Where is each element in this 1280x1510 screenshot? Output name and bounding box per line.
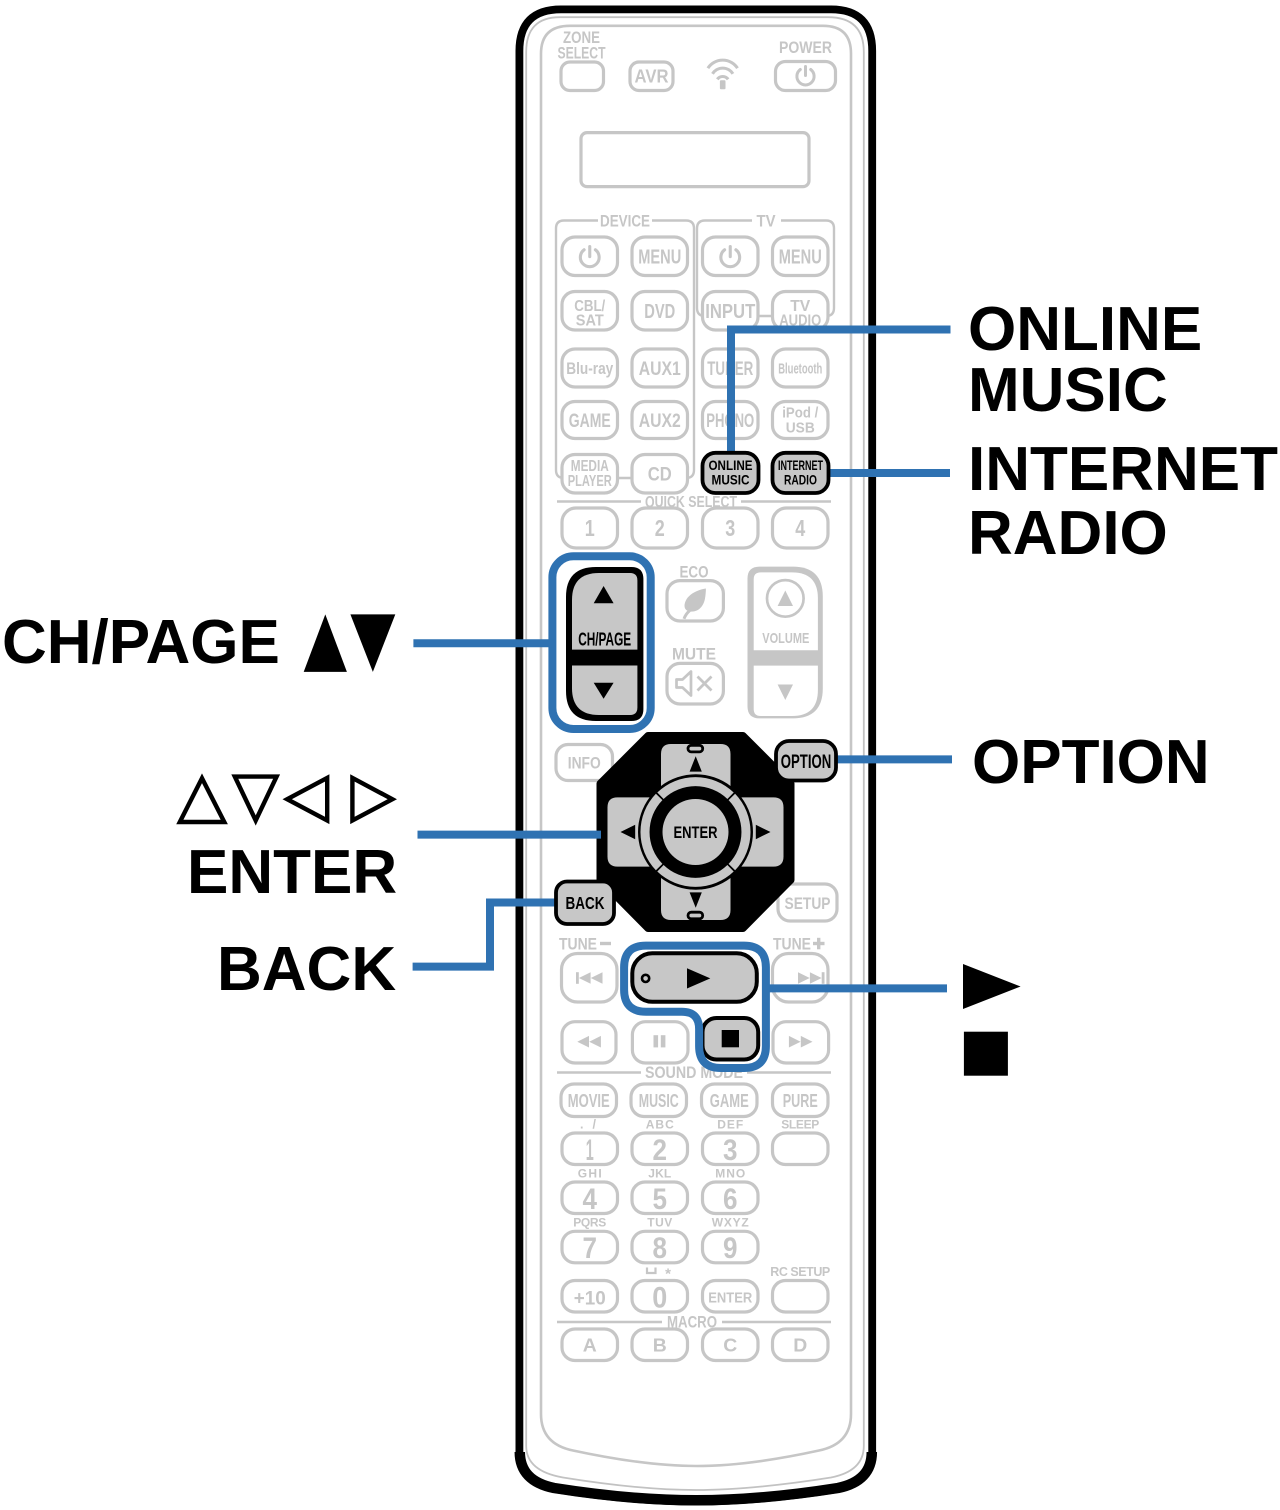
svg-text:TV: TV bbox=[757, 212, 777, 231]
svg-text:MUSIC: MUSIC bbox=[639, 1091, 679, 1111]
svg-text:2: 2 bbox=[655, 515, 665, 541]
svg-text:RC SETUP: RC SETUP bbox=[770, 1265, 830, 1279]
svg-text:ABC: ABC bbox=[646, 1118, 674, 1132]
svg-text:AUX2: AUX2 bbox=[639, 411, 681, 432]
svg-text:MOVIE: MOVIE bbox=[568, 1091, 610, 1111]
svg-text:BACK: BACK bbox=[217, 935, 396, 1004]
svg-text:4: 4 bbox=[795, 515, 805, 541]
svg-text:ECO: ECO bbox=[680, 564, 709, 582]
svg-text:3: 3 bbox=[725, 515, 735, 541]
svg-text:MENU: MENU bbox=[638, 246, 681, 268]
svg-text:WXYZ: WXYZ bbox=[712, 1216, 749, 1230]
svg-text:2: 2 bbox=[653, 1134, 668, 1167]
svg-text:PLAYER: PLAYER bbox=[568, 473, 612, 490]
svg-text:MUSIC: MUSIC bbox=[712, 471, 750, 487]
svg-text:INPUT: INPUT bbox=[705, 301, 755, 323]
svg-text:DEVICE: DEVICE bbox=[600, 212, 650, 231]
svg-text:. /: . / bbox=[580, 1118, 597, 1132]
svg-text:DVD: DVD bbox=[644, 301, 675, 323]
svg-text:MUTE: MUTE bbox=[672, 646, 716, 664]
svg-text:D: D bbox=[793, 1335, 807, 1355]
svg-text:POWER: POWER bbox=[779, 38, 832, 57]
svg-text:INTERNET: INTERNET bbox=[968, 435, 1278, 504]
svg-text:6: 6 bbox=[723, 1183, 738, 1216]
svg-text:GHI: GHI bbox=[578, 1167, 602, 1181]
svg-text:SLEEP: SLEEP bbox=[781, 1118, 819, 1132]
svg-text:PQRS: PQRS bbox=[573, 1216, 606, 1230]
svg-text:BACK: BACK bbox=[566, 893, 605, 913]
svg-text:MNO: MNO bbox=[715, 1167, 745, 1181]
svg-text:CH/PAGE: CH/PAGE bbox=[578, 630, 631, 650]
svg-text:7: 7 bbox=[583, 1232, 598, 1265]
svg-text:9: 9 bbox=[723, 1232, 738, 1265]
svg-text:5: 5 bbox=[653, 1183, 668, 1216]
svg-text:RADIO: RADIO bbox=[784, 471, 817, 487]
svg-text:B: B bbox=[653, 1335, 667, 1355]
svg-text:AUX1: AUX1 bbox=[639, 359, 681, 380]
svg-text:PURE: PURE bbox=[783, 1091, 818, 1111]
svg-text:ENTER: ENTER bbox=[708, 1290, 752, 1307]
svg-text:1: 1 bbox=[586, 1134, 594, 1167]
svg-text:C: C bbox=[723, 1335, 737, 1355]
svg-text:TUV: TUV bbox=[647, 1216, 672, 1230]
svg-text:USB: USB bbox=[786, 420, 815, 437]
svg-text:4: 4 bbox=[583, 1183, 598, 1216]
svg-text:A: A bbox=[583, 1335, 597, 1355]
svg-text:0: 0 bbox=[652, 1281, 667, 1314]
svg-text:Blu-ray: Blu-ray bbox=[566, 359, 613, 378]
svg-text:3: 3 bbox=[723, 1134, 738, 1167]
svg-text:SELECT: SELECT bbox=[558, 44, 606, 63]
svg-text:ENTER: ENTER bbox=[674, 823, 718, 842]
svg-text:DEF: DEF bbox=[717, 1118, 743, 1132]
svg-text:CH/PAGE: CH/PAGE bbox=[2, 608, 280, 677]
svg-text:OPTION: OPTION bbox=[781, 752, 832, 773]
svg-text:INFO: INFO bbox=[568, 755, 601, 773]
svg-text:OPTION: OPTION bbox=[972, 728, 1210, 797]
svg-text:GAME: GAME bbox=[569, 411, 611, 432]
svg-text:RADIO: RADIO bbox=[968, 499, 1168, 568]
svg-text:SETUP: SETUP bbox=[785, 894, 831, 913]
svg-text:ONLINE: ONLINE bbox=[968, 295, 1202, 364]
svg-text:JKL: JKL bbox=[648, 1167, 671, 1181]
svg-text:VOLUME: VOLUME bbox=[762, 630, 809, 647]
svg-text:8: 8 bbox=[653, 1232, 668, 1265]
svg-text:ENTER: ENTER bbox=[187, 838, 397, 907]
svg-text:SAT: SAT bbox=[576, 313, 604, 330]
svg-text:1: 1 bbox=[585, 515, 595, 541]
svg-text:CD: CD bbox=[648, 464, 672, 485]
svg-text:Bluetooth: Bluetooth bbox=[778, 360, 822, 377]
svg-text:MUSIC: MUSIC bbox=[968, 356, 1168, 425]
svg-text:GAME: GAME bbox=[710, 1091, 749, 1111]
svg-text:TUNE: TUNE bbox=[559, 936, 597, 954]
svg-text:MENU: MENU bbox=[779, 246, 822, 268]
svg-text:+10: +10 bbox=[574, 1289, 606, 1310]
svg-text:AVR: AVR bbox=[635, 66, 669, 86]
svg-text:TUNE: TUNE bbox=[773, 936, 811, 954]
